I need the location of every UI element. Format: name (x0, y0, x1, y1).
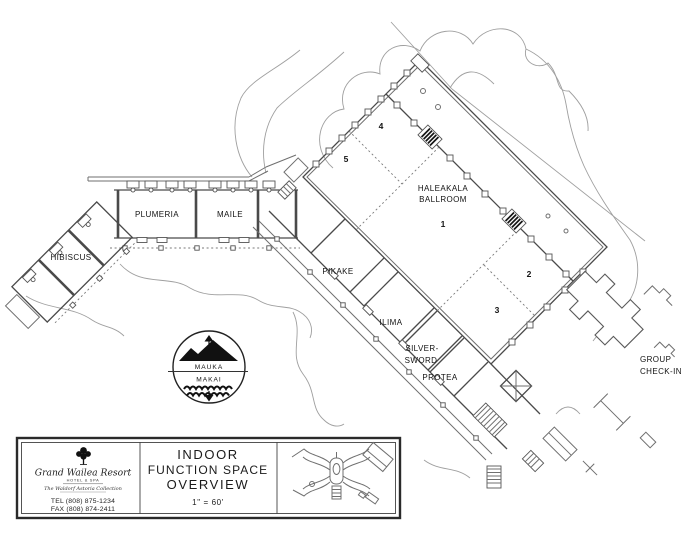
section-label-2: 2 (527, 269, 532, 279)
misc-structures (543, 394, 656, 480)
room-label-haleakala-line2: BALLROOM (419, 195, 467, 204)
label-group-checkin-line2: CHECK-IN (640, 367, 682, 376)
site-markers (421, 89, 569, 234)
west-junction-structures (278, 158, 308, 199)
room-label-maile: MAILE (217, 210, 243, 219)
title-block: Grand Wailea Resort HOTEL & SPA The Wald… (17, 438, 400, 518)
room-label-silversword-line1: SILVER- (405, 344, 438, 353)
floor-plan-page: PLUMERIA MAILE HIBISCUS PIKAKE ILIMA SIL… (0, 0, 693, 539)
room-label-silversword-line2: SWORD (405, 356, 438, 365)
sheet-title-line2: FUNCTION SPACE (148, 463, 269, 477)
compass-label-makai: MAKAI (196, 377, 222, 384)
mauka-makai-compass: MAUKA MAKAI (168, 331, 248, 403)
hotel-subtitle: HOTEL & SPA (67, 478, 100, 483)
entry-stair-cluster (473, 370, 544, 488)
compass-label-mauka: MAUKA (195, 364, 223, 371)
room-label-haleakala-line1: HALEAKALA (418, 184, 469, 193)
room-label-protea: PROTEA (422, 373, 458, 382)
sheet-title-line1: INDOOR (177, 447, 239, 462)
room-labels: PLUMERIA MAILE HIBISCUS PIKAKE ILIMA SIL… (51, 121, 682, 382)
sheet-scale: 1" = 60' (192, 498, 224, 507)
garden-walkway (253, 221, 492, 460)
ballroom-entry-vestibules (411, 54, 526, 233)
hotel-collection: The Waldorf Astoria Collection (44, 486, 122, 492)
room-label-ilima: ILIMA (380, 318, 403, 327)
room-label-plumeria: PLUMERIA (135, 210, 179, 219)
room-label-hibiscus: HIBISCUS (51, 253, 92, 262)
hibiscus-wing (0, 202, 138, 341)
room-label-pikake: PIKAKE (322, 267, 353, 276)
left-wing (88, 155, 300, 250)
section-label-4: 4 (379, 121, 384, 131)
section-label-1: 1 (441, 219, 446, 229)
sheet-title-line3: OVERVIEW (167, 477, 250, 492)
section-label-3: 3 (495, 305, 500, 315)
section-label-5: 5 (344, 154, 349, 164)
hotel-tel: TEL (808) 875-1234 (51, 498, 115, 505)
wall-columns (313, 70, 586, 345)
hotel-fax: FAX (808) 874-2411 (51, 506, 115, 513)
label-group-checkin-line1: GROUP (640, 355, 671, 364)
haleakala-ballroom-block (303, 60, 607, 414)
corridor-wing (269, 211, 507, 449)
floor-plan-drawing: PLUMERIA MAILE HIBISCUS PIKAKE ILIMA SIL… (0, 0, 693, 539)
